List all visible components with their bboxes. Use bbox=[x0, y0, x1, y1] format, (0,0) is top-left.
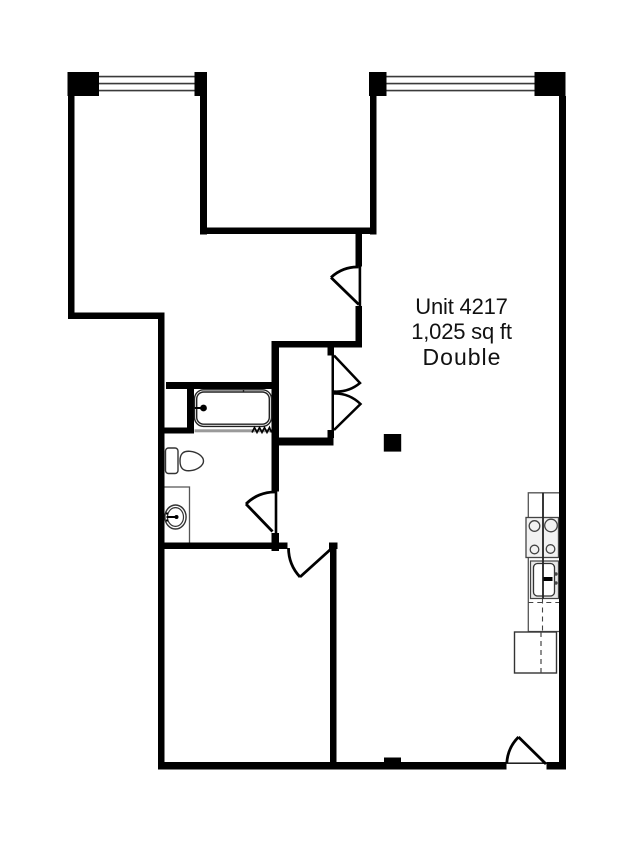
svg-text:1,025 sq ft: 1,025 sq ft bbox=[411, 319, 512, 344]
svg-text:Double: Double bbox=[423, 344, 502, 370]
svg-text:Unit 4217: Unit 4217 bbox=[415, 294, 507, 319]
